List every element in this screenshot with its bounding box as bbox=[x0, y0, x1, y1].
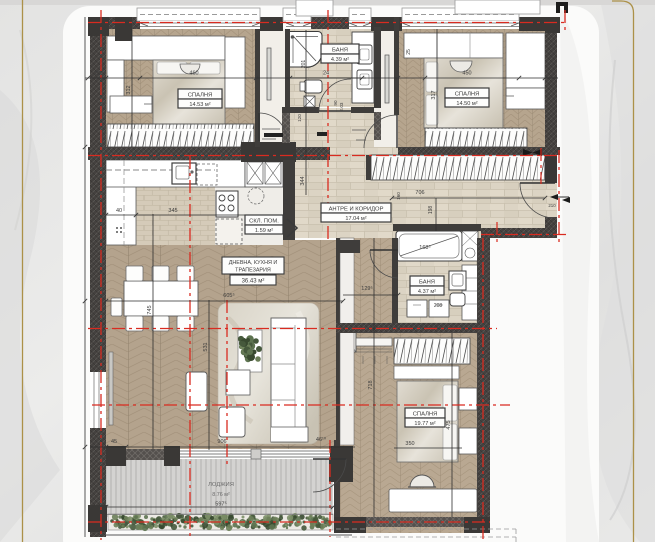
svg-text:597⁵: 597⁵ bbox=[215, 501, 226, 508]
svg-text:ДНЕВНА, КУХНЯ И: ДНЕВНА, КУХНЯ И bbox=[229, 260, 278, 266]
svg-text:40: 40 bbox=[116, 208, 122, 214]
svg-text:475: 475 bbox=[446, 420, 452, 429]
svg-text:2.4: 2.4 bbox=[284, 198, 290, 205]
svg-text:208: 208 bbox=[434, 303, 443, 309]
svg-text:4.39 м²: 4.39 м² bbox=[331, 57, 349, 63]
svg-text:605⁵: 605⁵ bbox=[223, 292, 234, 299]
svg-text:36.43 м²: 36.43 м² bbox=[242, 279, 265, 285]
svg-text:90: 90 bbox=[333, 100, 338, 106]
svg-text:СПАЛНЯ: СПАЛНЯ bbox=[188, 92, 213, 98]
svg-text:1.59 м²: 1.59 м² bbox=[255, 228, 273, 234]
svg-text:25: 25 bbox=[94, 71, 100, 77]
svg-text:БАНЯ: БАНЯ bbox=[332, 47, 348, 53]
svg-text:312: 312 bbox=[126, 85, 132, 94]
svg-text:ТРАПЕЗАРИЯ: ТРАПЕЗАРИЯ bbox=[235, 268, 271, 274]
svg-text:ЛОДЖИЯ: ЛОДЖИЯ bbox=[208, 482, 234, 488]
svg-text:120: 120 bbox=[297, 114, 302, 122]
svg-text:906: 906 bbox=[217, 439, 226, 445]
svg-text:8.76 м²: 8.76 м² bbox=[212, 492, 230, 498]
svg-text:БАНЯ: БАНЯ bbox=[419, 279, 435, 285]
svg-text:317: 317 bbox=[431, 90, 437, 99]
svg-text:14.50 м²: 14.50 м² bbox=[456, 101, 477, 107]
svg-text:160: 160 bbox=[396, 192, 401, 200]
svg-text:168⁵: 168⁵ bbox=[419, 244, 430, 251]
svg-text:2.03: 2.03 bbox=[339, 102, 344, 111]
svg-text:СПАЛНЯ: СПАЛНЯ bbox=[455, 91, 480, 97]
svg-text:450: 450 bbox=[462, 71, 471, 77]
svg-text:СПАЛНЯ: СПАЛНЯ bbox=[413, 411, 438, 417]
svg-text:210: 210 bbox=[548, 203, 556, 208]
svg-text:17.04 м²: 17.04 м² bbox=[345, 216, 366, 222]
svg-text:745: 745 bbox=[147, 305, 153, 314]
svg-text:45: 45 bbox=[367, 519, 372, 525]
svg-text:345: 345 bbox=[168, 208, 177, 214]
svg-text:19.77 м²: 19.77 м² bbox=[414, 421, 435, 427]
svg-text:24: 24 bbox=[323, 71, 329, 77]
svg-text:531: 531 bbox=[203, 342, 209, 351]
svg-text:46¹⁰: 46¹⁰ bbox=[316, 436, 327, 443]
svg-text:350: 350 bbox=[405, 441, 414, 447]
svg-text:460: 460 bbox=[189, 71, 198, 77]
svg-text:25: 25 bbox=[406, 49, 412, 55]
svg-text:201: 201 bbox=[301, 60, 307, 69]
svg-text:129⁵: 129⁵ bbox=[361, 285, 372, 292]
svg-text:718: 718 bbox=[368, 380, 374, 389]
svg-text:706: 706 bbox=[415, 190, 424, 196]
svg-text:4.37 м²: 4.37 м² bbox=[418, 289, 436, 295]
svg-text:АНТРЕ И КОРИДОР: АНТРЕ И КОРИДОР bbox=[329, 206, 384, 212]
svg-text:СКЛ. ПОМ.: СКЛ. ПОМ. bbox=[249, 218, 279, 224]
svg-text:45: 45 bbox=[111, 439, 117, 445]
svg-text:14.53 м²: 14.53 м² bbox=[189, 102, 210, 108]
svg-text:344: 344 bbox=[300, 176, 306, 185]
svg-text:198: 198 bbox=[428, 206, 434, 215]
